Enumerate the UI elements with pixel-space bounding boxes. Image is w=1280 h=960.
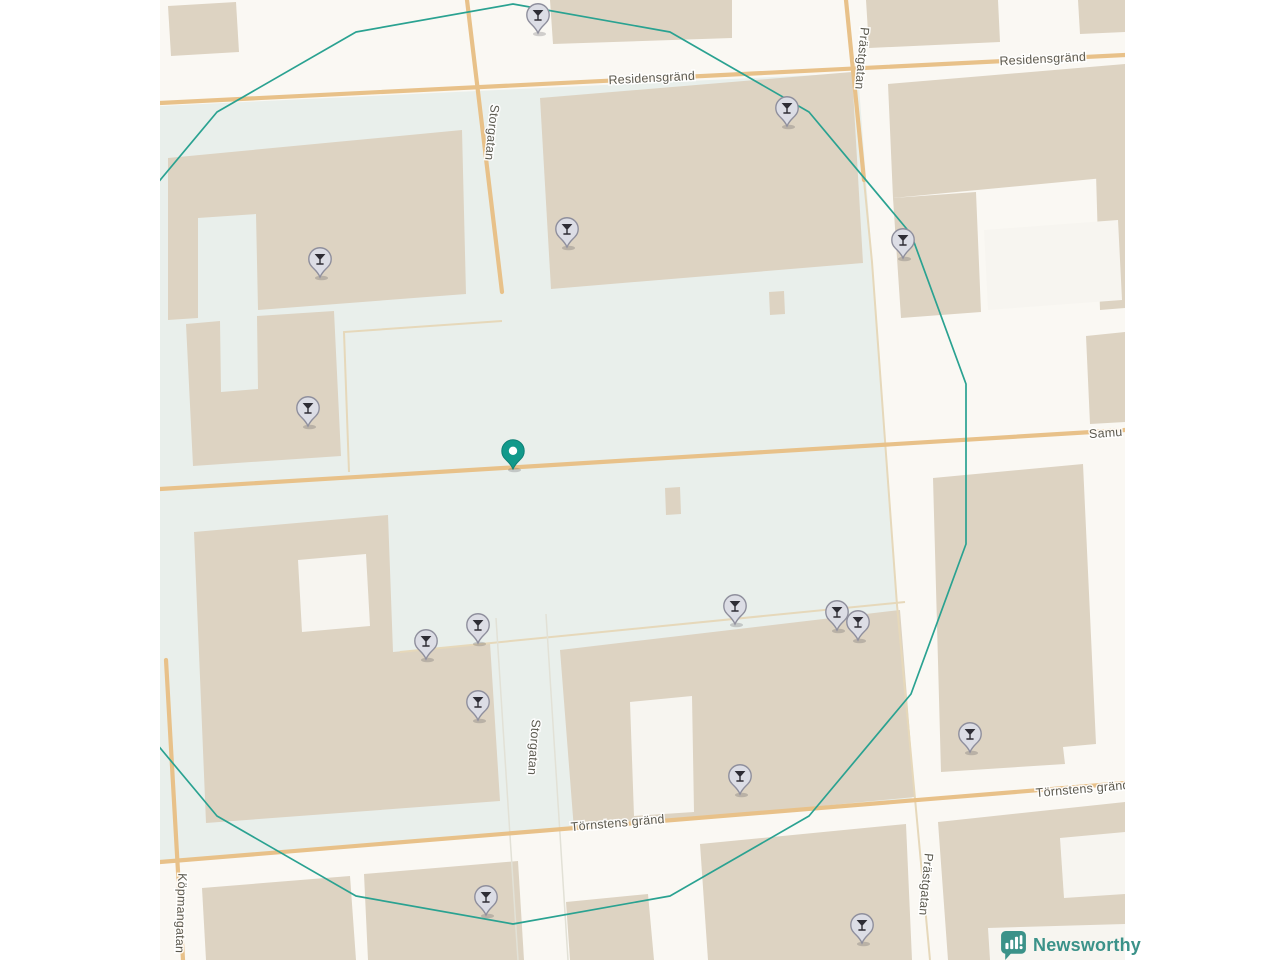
newsworthy-wordmark: Newsworthy xyxy=(1033,935,1141,956)
map-stage: ResidensgrändResidensgrändStorgatanStorg… xyxy=(0,0,1280,960)
newsworthy-logo[interactable]: Newsworthy xyxy=(1001,931,1141,960)
street-label: Samu xyxy=(1089,425,1123,441)
newsworthy-icon xyxy=(1001,931,1026,960)
map-canvas[interactable]: ResidensgrändResidensgrändStorgatanStorg… xyxy=(0,0,1280,960)
street-label: Köpmangatan xyxy=(173,873,190,953)
